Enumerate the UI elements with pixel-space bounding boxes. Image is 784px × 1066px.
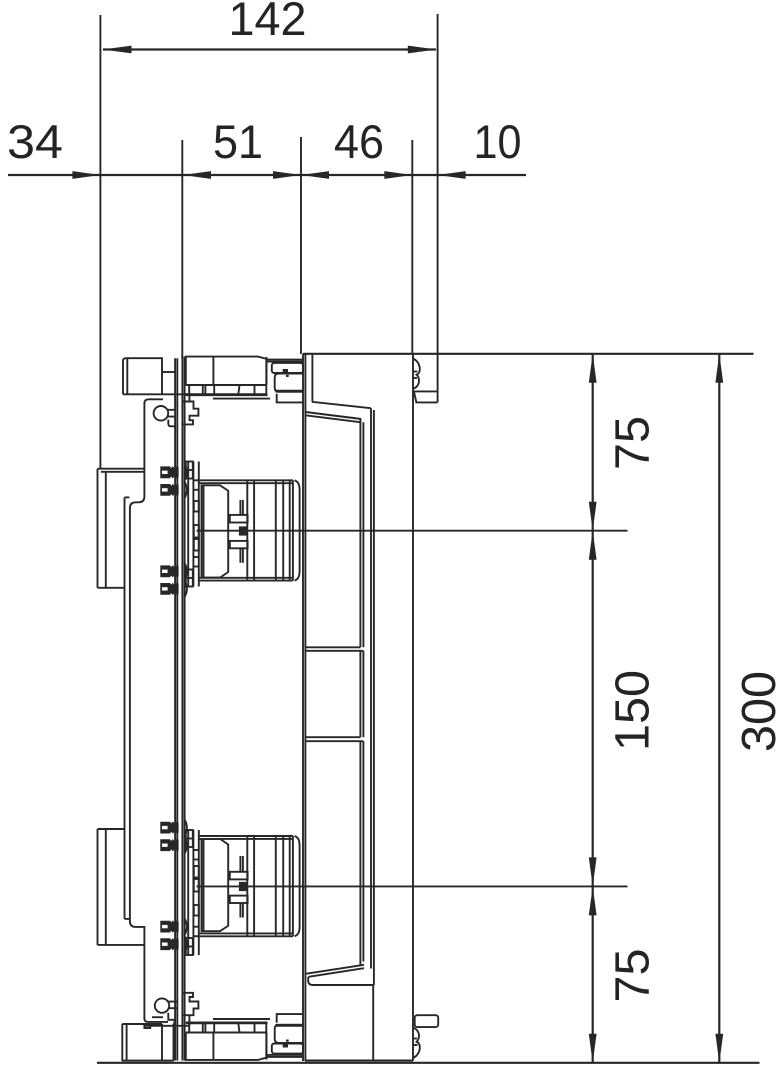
svg-text:51: 51 bbox=[213, 115, 263, 168]
svg-text:46: 46 bbox=[334, 115, 384, 168]
svg-text:10: 10 bbox=[474, 115, 522, 168]
svg-text:142: 142 bbox=[229, 0, 307, 45]
svg-text:300: 300 bbox=[733, 671, 784, 752]
svg-text:75: 75 bbox=[607, 416, 660, 470]
svg-text:150: 150 bbox=[607, 670, 660, 751]
svg-text:75: 75 bbox=[607, 949, 660, 1003]
svg-text:34: 34 bbox=[7, 115, 63, 168]
